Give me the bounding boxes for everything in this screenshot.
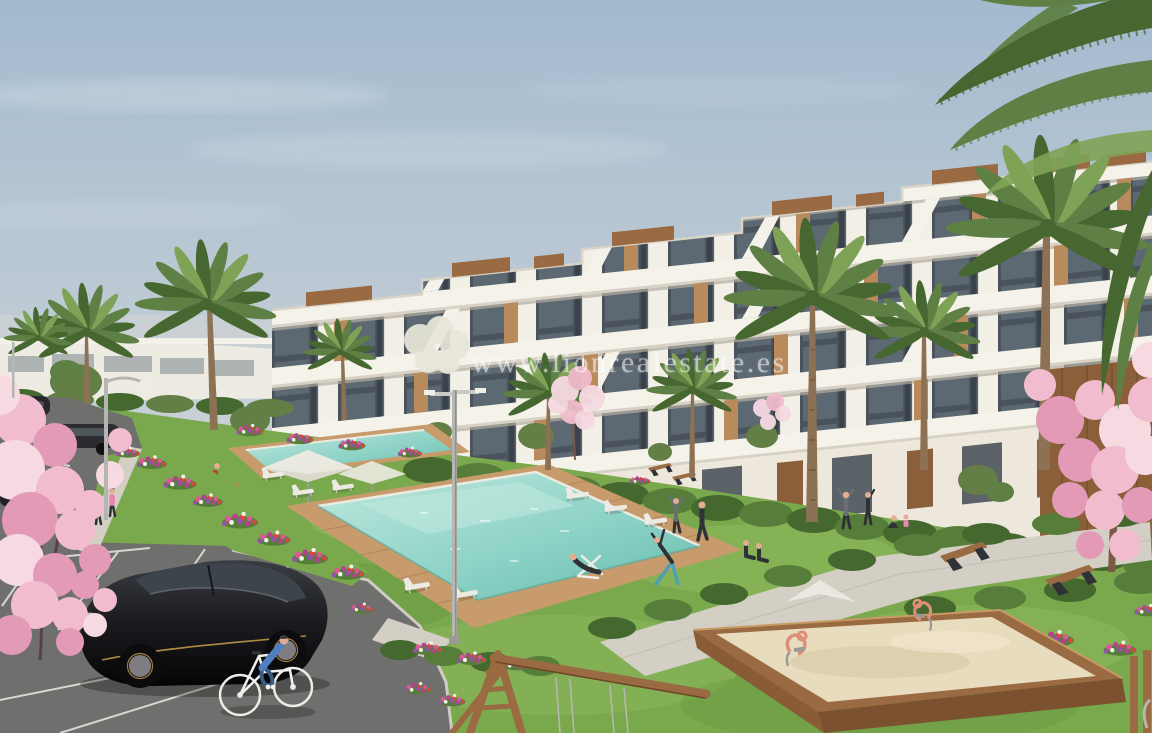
- distant-buildings: [0, 338, 290, 402]
- property-render-image: www.lionrealestate.es: [0, 0, 1152, 733]
- child-pink: [904, 515, 909, 528]
- scene-canvas: [0, 0, 1152, 733]
